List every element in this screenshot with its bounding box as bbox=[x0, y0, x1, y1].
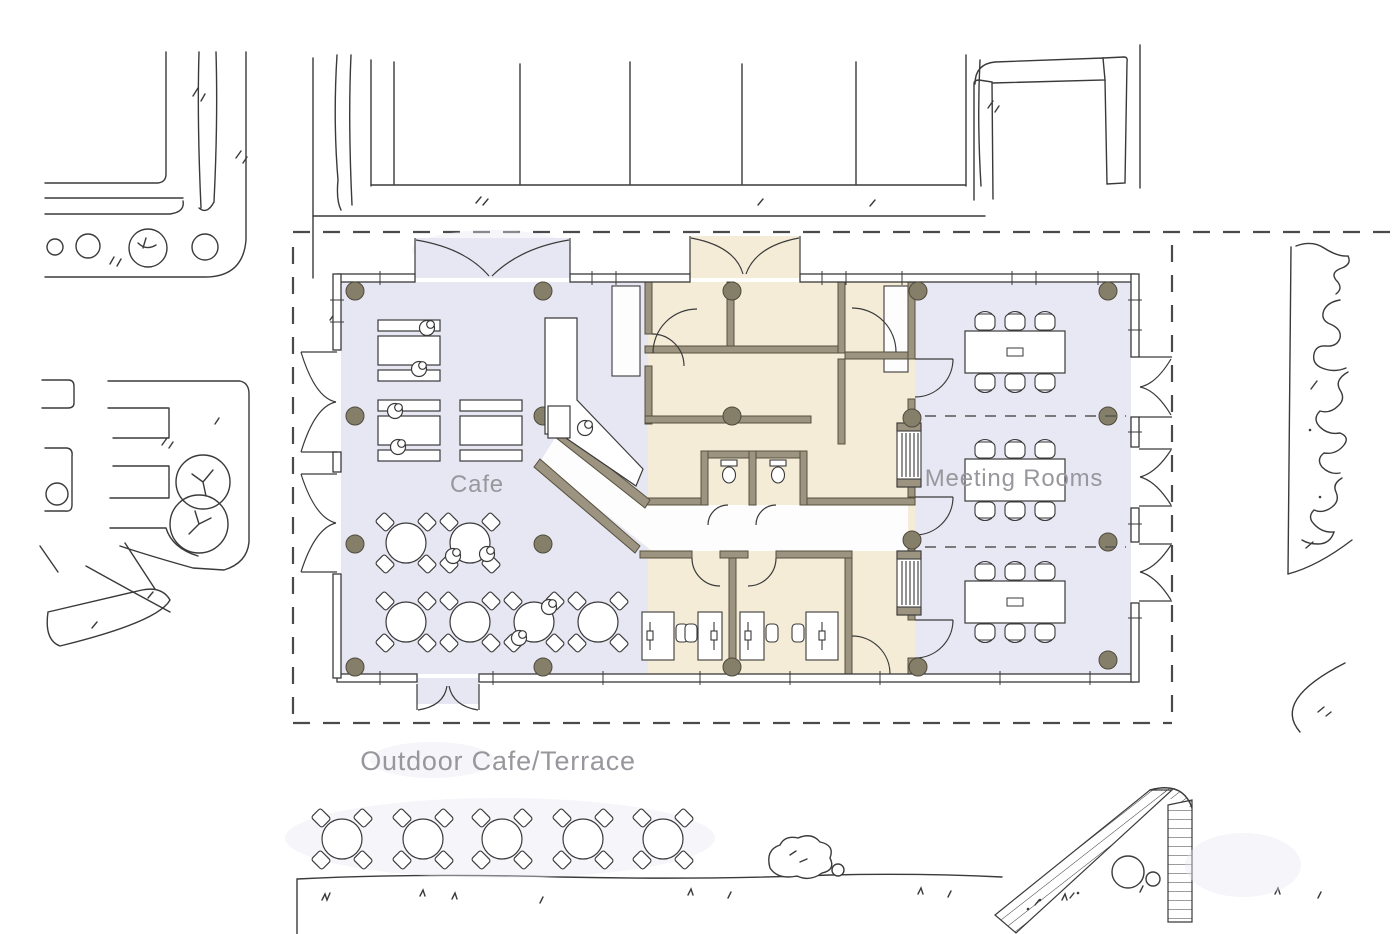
east-wall-doors bbox=[1139, 357, 1172, 601]
bush-terrace bbox=[769, 836, 844, 879]
seated-person bbox=[391, 440, 406, 455]
cafe-label: Cafe bbox=[450, 471, 504, 498]
paths-bottomleft bbox=[40, 543, 170, 646]
table-console bbox=[1007, 348, 1023, 356]
bush-row-topleft bbox=[47, 229, 218, 267]
toilet bbox=[721, 460, 737, 483]
hedge-row-right bbox=[1288, 243, 1352, 732]
street-corner-topleft bbox=[45, 52, 247, 277]
building-footprint-left bbox=[42, 380, 249, 570]
floor-plan-canvas: Cafe Meeting Rooms Outdoor Cafe/Terrace bbox=[0, 0, 1400, 934]
outdoor-terrace-label: Outdoor Cafe/Terrace bbox=[360, 746, 636, 776]
west-wall-doors bbox=[301, 352, 337, 572]
porch-cafe-entrance bbox=[415, 238, 570, 278]
partition-pocket-1 bbox=[897, 423, 921, 487]
seated-person bbox=[542, 600, 557, 615]
cafe-shelf bbox=[612, 286, 640, 376]
toilet bbox=[770, 460, 786, 483]
porch-terrace-door bbox=[417, 678, 479, 704]
communal-table bbox=[460, 400, 522, 461]
corridor-main bbox=[652, 505, 908, 551]
hatched-bank-bottomright bbox=[995, 788, 1192, 933]
table-console bbox=[1007, 598, 1023, 606]
office-desks bbox=[642, 612, 838, 660]
seated-person bbox=[388, 404, 403, 419]
seated-person bbox=[420, 321, 435, 336]
barista-person bbox=[578, 421, 593, 436]
seated-person bbox=[512, 631, 527, 646]
partition-pocket-2 bbox=[897, 551, 921, 615]
seated-person bbox=[446, 549, 461, 564]
meeting-rooms-label: Meeting Rooms bbox=[925, 465, 1103, 492]
floor-plan-svg: Cafe Meeting Rooms Outdoor Cafe/Terrace bbox=[0, 0, 1400, 934]
hedge-u-topright bbox=[974, 45, 1140, 200]
seated-person bbox=[412, 362, 427, 377]
seated-person bbox=[480, 547, 495, 562]
